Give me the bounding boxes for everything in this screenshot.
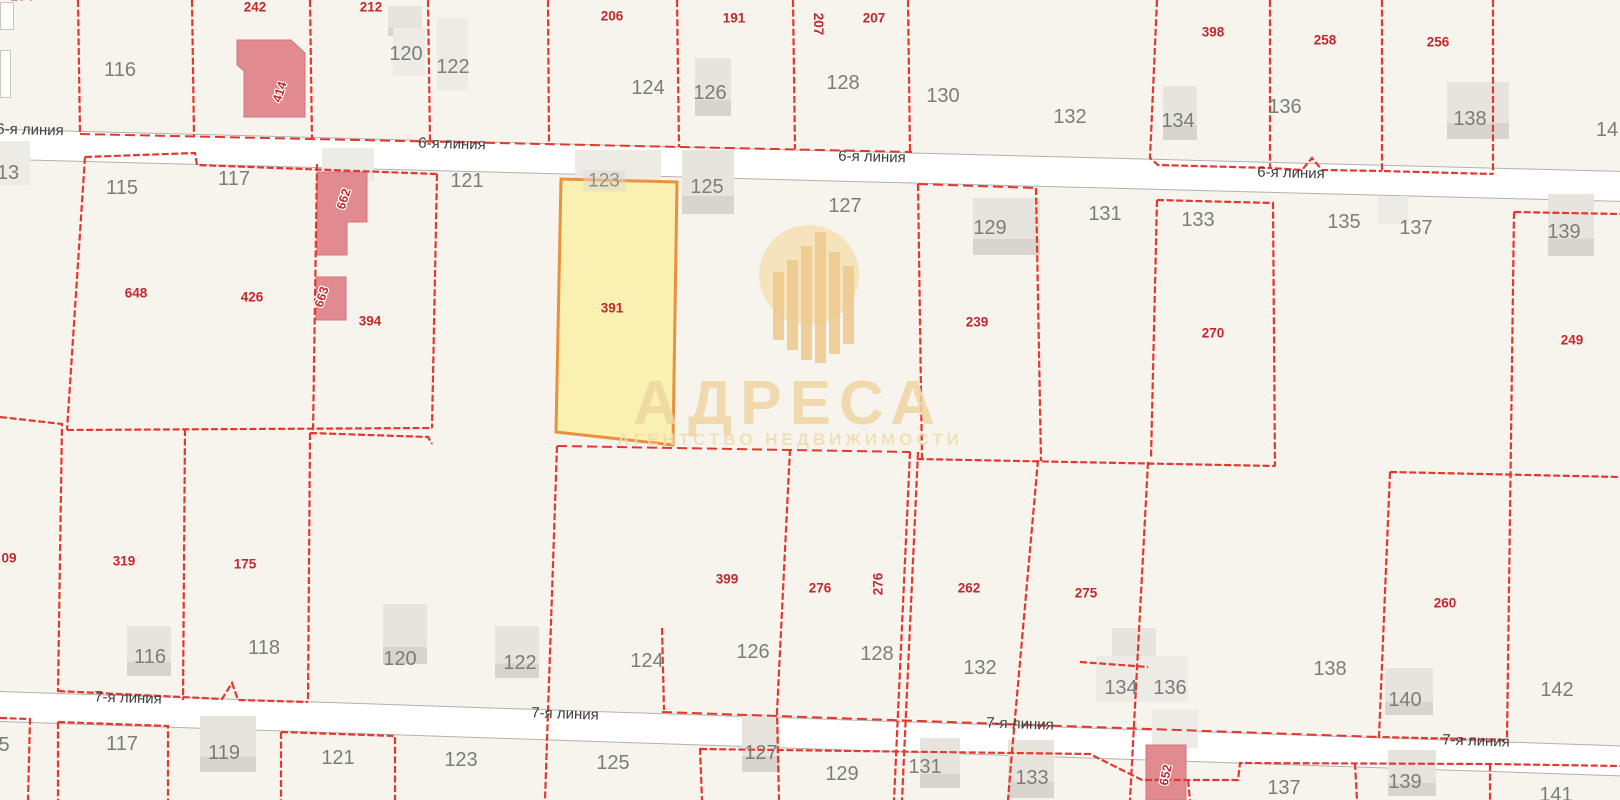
house-number-126: 126	[693, 83, 726, 103]
parcel-number-249: 249	[1561, 333, 1584, 347]
house-number-133: 133	[1015, 768, 1048, 788]
house-number-118: 118	[248, 638, 280, 658]
house-number-132: 132	[963, 658, 996, 678]
parcel-number-207: 207	[811, 13, 825, 36]
parcel-number-391: 391	[601, 301, 624, 315]
house-number-139: 139	[1547, 222, 1580, 242]
street-label-6-я линия: 6-я линия	[1257, 165, 1325, 182]
house-number-132: 132	[1053, 107, 1086, 127]
house-number-116: 116	[104, 60, 136, 80]
house-number-131: 131	[908, 757, 941, 777]
parcel-number-239: 239	[966, 315, 989, 329]
house-number-128: 128	[860, 644, 893, 664]
parcel-number-242: 242	[244, 0, 267, 14]
parcel-number-204: 204	[11, 0, 34, 3]
parcel-number-270: 270	[1202, 326, 1225, 340]
parcel-number-262: 262	[958, 581, 981, 595]
house-number-137: 137	[1267, 778, 1300, 798]
house-number-116: 116	[134, 647, 166, 667]
house-number-115: 115	[106, 178, 138, 198]
street-label-7-я линия: 7-я линия	[986, 715, 1054, 732]
parcel-number-276: 276	[809, 581, 832, 595]
parcel-number-398: 398	[1202, 25, 1225, 39]
parcel-number-09: 09	[1, 551, 16, 565]
house-number-13: 13	[0, 163, 19, 183]
parcel-number-256: 256	[1427, 35, 1450, 49]
house-number-117: 117	[218, 169, 250, 189]
parcel-number-175: 175	[234, 557, 257, 571]
street-label-6-я линия: 6-я линия	[418, 136, 486, 153]
pink-building-shapes	[237, 40, 1186, 800]
parcel-number-319: 319	[113, 554, 136, 568]
house-number-136: 136	[1268, 97, 1301, 117]
house-number-127: 127	[744, 743, 777, 763]
parcel-number-206: 206	[601, 9, 624, 23]
house-number-121: 121	[321, 748, 354, 768]
parcel-number-275: 275	[1075, 586, 1098, 600]
house-number-125: 125	[690, 177, 723, 197]
house-number-127: 127	[828, 196, 861, 216]
parcel-number-276: 276	[871, 573, 885, 596]
house-number-124: 124	[631, 78, 664, 98]
house-number-130: 130	[926, 86, 959, 106]
parcel-number-426: 426	[241, 290, 264, 304]
street-label-6-я линия: 6-я линия	[0, 122, 64, 139]
street-label-6-я линия: 6-я линия	[838, 149, 906, 166]
house-number-121: 121	[450, 171, 483, 191]
house-number-142: 142	[1540, 680, 1573, 700]
street-label-7-я линия: 7-я линия	[94, 689, 162, 706]
house-number-134: 134	[1161, 111, 1194, 131]
house-number-125: 125	[596, 753, 629, 773]
house-number-141: 141	[1539, 785, 1572, 800]
house-number-5: 5	[0, 735, 10, 755]
house-number-120: 120	[389, 44, 422, 64]
house-number-128: 128	[826, 73, 859, 93]
house-number-138: 138	[1453, 109, 1486, 129]
parcel-number-394: 394	[359, 314, 382, 328]
parcel-number-191: 191	[723, 11, 746, 25]
house-number-135: 135	[1327, 212, 1360, 232]
parcel-number-260: 260	[1434, 596, 1457, 610]
house-number-124: 124	[630, 651, 663, 671]
street-label-7-я линия: 7-я линия	[1442, 732, 1510, 749]
house-number-122: 122	[503, 653, 536, 673]
house-number-126: 126	[736, 642, 769, 662]
house-number-129: 129	[973, 218, 1006, 238]
house-number-14: 14	[1596, 120, 1618, 140]
house-number-136: 136	[1153, 678, 1186, 698]
house-number-123: 123	[444, 750, 477, 770]
street-label-7-я линия: 7-я линия	[531, 705, 599, 722]
house-number-117: 117	[106, 734, 138, 754]
house-number-119: 119	[208, 743, 240, 763]
parcel-number-258: 258	[1314, 33, 1337, 47]
parcel-number-648: 648	[125, 286, 148, 300]
parcel-number-212: 212	[360, 0, 383, 14]
highlighted-house-number-123[interactable]: 123	[583, 171, 625, 192]
house-number-140: 140	[1388, 690, 1421, 710]
house-number-137: 137	[1399, 218, 1432, 238]
parcel-boundaries-layer	[0, 0, 1620, 800]
house-number-139: 139	[1388, 772, 1421, 792]
parcel-number-207: 207	[863, 11, 886, 25]
cadastral-map[interactable]: АДРЕСА АГЕНТСТВО НЕДВИЖИМОСТИ 2042422122…	[0, 0, 1620, 800]
boundary-lines	[0, 0, 1620, 800]
house-number-131: 131	[1088, 204, 1121, 224]
house-number-133: 133	[1181, 210, 1214, 230]
house-number-138: 138	[1313, 659, 1346, 679]
parcel-number-399: 399	[716, 572, 739, 586]
house-number-129: 129	[825, 764, 858, 784]
house-number-122: 122	[436, 57, 469, 77]
house-number-134: 134	[1104, 678, 1137, 698]
house-number-120: 120	[383, 649, 416, 669]
